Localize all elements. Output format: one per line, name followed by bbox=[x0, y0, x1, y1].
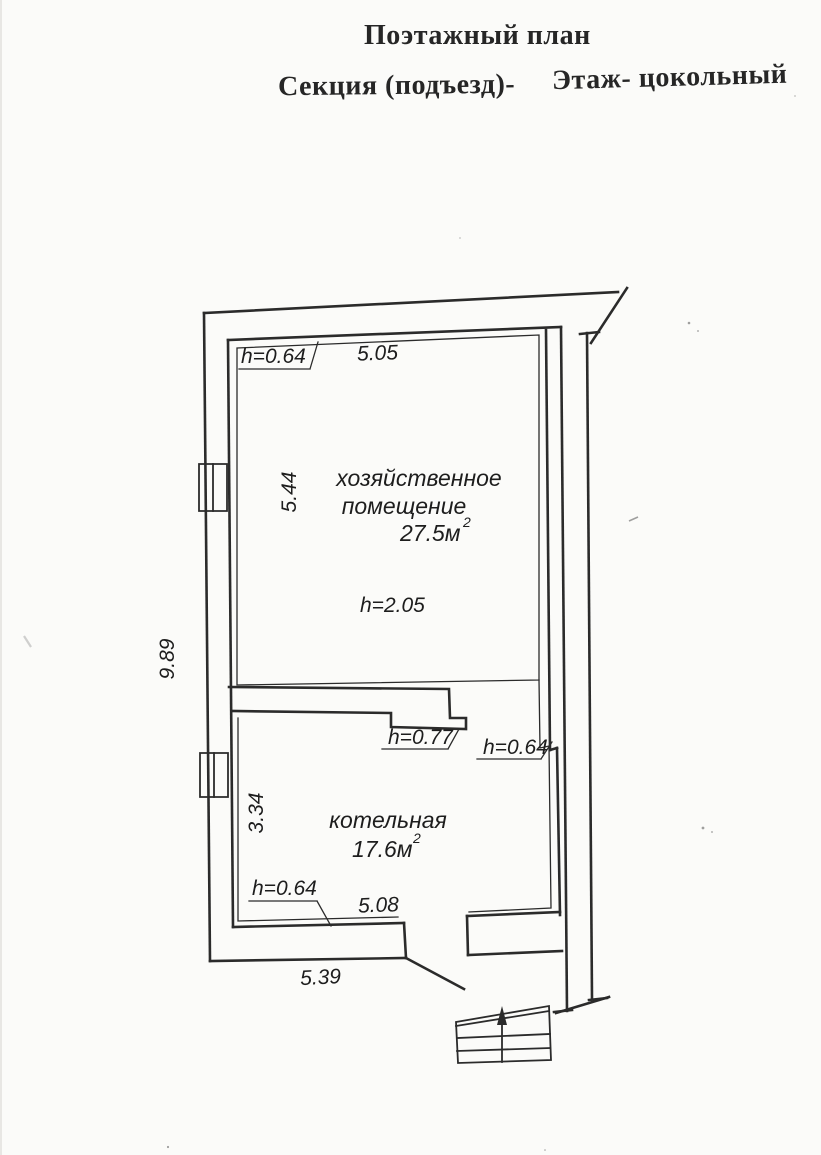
room1-ceiling-height: h=2.05 bbox=[360, 594, 425, 617]
outer-walls bbox=[204, 292, 618, 1012]
scan-edge bbox=[0, 0, 2, 1155]
dim-room2-height: 3.34 bbox=[245, 793, 268, 834]
room2-area: 17.6м bbox=[352, 836, 413, 862]
door-opening-line bbox=[406, 958, 464, 989]
room1-name-line2: помещение bbox=[342, 493, 467, 519]
height-mark-bottom-left: h=0.64 bbox=[252, 877, 317, 900]
dim-room2-width: 5.08 bbox=[358, 893, 400, 917]
partition-wall bbox=[229, 687, 466, 729]
window-icon bbox=[200, 753, 228, 797]
room-boundary-lines bbox=[237, 335, 551, 921]
room2-area-superscript: 2 bbox=[412, 830, 421, 846]
stairs-icon bbox=[456, 1006, 551, 1063]
room2-name: котельная bbox=[329, 807, 447, 833]
floor-plan-page: Поэтажный план Секция (подъезд)- Этаж- ц… bbox=[0, 0, 821, 1155]
dim-bottom-width: 5.39 bbox=[300, 965, 342, 990]
dim-overall-height: 9.89 bbox=[156, 638, 179, 679]
dim-top-width: 5.05 bbox=[357, 341, 399, 365]
height-mark-partition: h=0.77 bbox=[388, 726, 454, 749]
height-mark-top-left: h=0.64 bbox=[241, 345, 306, 368]
scan-artifacts bbox=[24, 95, 796, 1151]
floor-plan-drawing: h=0.64 5.05 5.44 9.89 хозяйственное поме… bbox=[0, 0, 821, 1155]
room1-area: 27.5м bbox=[399, 520, 461, 546]
window-icon bbox=[199, 464, 227, 511]
dim-room1-height: 5.44 bbox=[278, 472, 301, 513]
height-mark-right: h=0.64 bbox=[483, 736, 548, 759]
room1-area-superscript: 2 bbox=[462, 514, 471, 530]
room1-name-line1: хозяйственное bbox=[335, 465, 501, 491]
